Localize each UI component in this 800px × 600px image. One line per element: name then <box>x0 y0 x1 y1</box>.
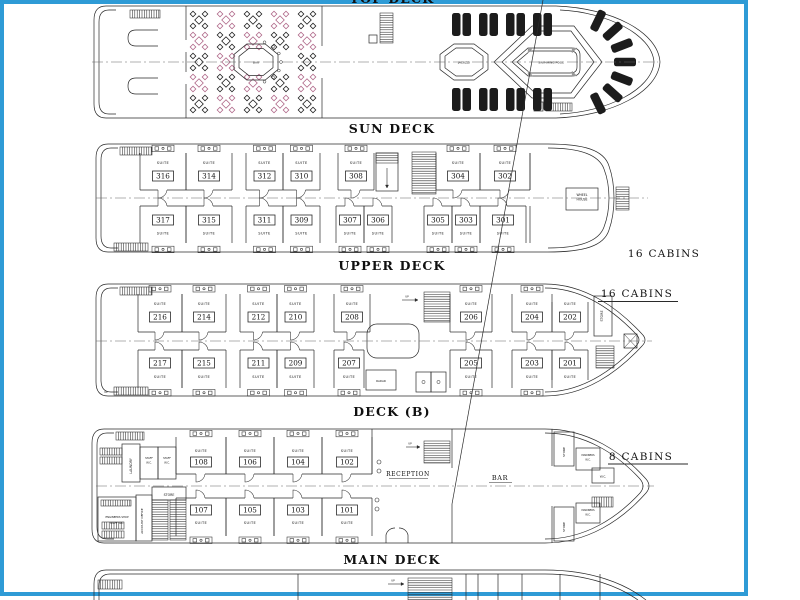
svg-text:SUITE: SUITE <box>244 449 257 453</box>
svg-text:311: 311 <box>258 216 272 225</box>
bar-label: BAR <box>492 474 509 482</box>
svg-text:SUITE: SUITE <box>295 161 308 165</box>
cabin-316: SUITE316 <box>140 145 186 198</box>
svg-text:310: 310 <box>295 172 309 181</box>
svg-text:SUITE: SUITE <box>154 302 167 306</box>
cabin-216: SUITE216 <box>138 286 182 341</box>
laundry-label: LAUNDRY <box>129 457 133 474</box>
svg-text:316: 316 <box>156 172 170 181</box>
svg-text:W.C.: W.C. <box>585 458 591 462</box>
cabin-211: SUITE211 <box>240 342 277 396</box>
svg-text:SUITE: SUITE <box>289 375 302 379</box>
svg-text:SUITE: SUITE <box>343 375 356 379</box>
bar-label: BAR <box>253 61 259 65</box>
radar-label: RADAR <box>376 379 386 383</box>
svg-text:UP: UP <box>104 390 108 394</box>
cabin-310: SUITE310 <box>283 145 320 198</box>
svg-text:SUITE: SUITE <box>195 521 208 525</box>
account-office: ACCOUNT OFFICE <box>136 495 152 541</box>
svg-text:SUITE: SUITE <box>460 232 473 236</box>
svg-text:W.C.: W.C. <box>585 513 591 517</box>
engineers-shop: ENGINEERS SHOPSTAFF W.C. <box>98 497 136 541</box>
svg-text:SUITE: SUITE <box>372 232 385 236</box>
svg-text:105: 105 <box>243 506 257 515</box>
svg-text:SUITE: SUITE <box>341 521 354 525</box>
cabin-214: SUITE214 <box>182 286 226 341</box>
svg-text:SUITE: SUITE <box>258 161 271 165</box>
svg-text:STAFF W.C.: STAFF W.C. <box>110 521 125 525</box>
svg-text:W.C.: W.C. <box>164 461 170 465</box>
svg-text:317: 317 <box>156 216 170 225</box>
radar-room: RADAR <box>366 370 396 390</box>
staff-wc-rooms: STAFFW.C.STAFFW.C. <box>140 447 176 479</box>
svg-text:SUITE: SUITE <box>195 449 208 453</box>
svg-text:314: 314 <box>202 172 216 181</box>
cabin-312: SUITE312 <box>246 145 283 198</box>
cabin-302: SUITE302 <box>480 145 530 198</box>
svg-text:SUITE: SUITE <box>244 521 257 525</box>
store-aft: STORE <box>152 487 186 540</box>
mariners-wc-bottom-label: MARINERS <box>581 508 595 512</box>
cabin-206: SUITE206 <box>450 286 492 341</box>
svg-text:SUITE: SUITE <box>258 232 271 236</box>
svg-text:SUITE: SUITE <box>497 232 510 236</box>
cabin-202: SUITE202 <box>552 302 588 340</box>
wheel-house-label: WHEEL <box>576 193 587 197</box>
svg-text:SUITE: SUITE <box>564 375 577 379</box>
svg-text:SUITE: SUITE <box>465 302 478 306</box>
svg-text:103: 103 <box>291 506 305 515</box>
midship-stairs: UP <box>402 292 450 322</box>
mariners-wc-top-label: MARINERS <box>581 453 595 457</box>
svg-text:SUITE: SUITE <box>203 161 216 165</box>
svg-text:101: 101 <box>340 506 354 515</box>
cabin-208: SUITE208 <box>334 286 370 341</box>
cabin-314: SUITE314 <box>186 145 232 198</box>
reception-label: RECEPTION <box>386 471 430 478</box>
svg-text:304: 304 <box>451 172 465 181</box>
svg-text:216: 216 <box>153 313 167 322</box>
cabin-209: SUITE209 <box>277 342 314 396</box>
svg-text:108: 108 <box>194 458 208 467</box>
sun-deck-plan: BARJACUZZISWIMMING POOL <box>92 6 660 118</box>
upper-deck-caption: UPPER DECK <box>192 258 592 273</box>
cabin-106: SUITE106 <box>226 430 274 482</box>
wc-rooms <box>416 372 446 392</box>
main-deck-cabin-count: 8 CABINS <box>609 451 673 463</box>
svg-text:104: 104 <box>291 458 305 467</box>
svg-text:204: 204 <box>525 313 539 322</box>
svg-text:SUITE: SUITE <box>526 302 539 306</box>
svg-text:308: 308 <box>349 172 363 181</box>
svg-text:SUITE: SUITE <box>344 232 357 236</box>
svg-text:312: 312 <box>258 172 272 181</box>
svg-text:SUITE: SUITE <box>499 161 512 165</box>
cabin-205: SUITE205 <box>450 342 492 396</box>
cabin-104: SUITE104 <box>274 430 322 482</box>
ship-deck-plans: BARJACUZZISWIMMING POOLWHEELHOUSESUITE31… <box>0 0 800 600</box>
cabin-201: SUITE201 <box>552 342 588 380</box>
cabin-207: SUITE207 <box>334 342 364 396</box>
jacuzzi-label: JACUZZI <box>457 61 470 65</box>
svg-text:215: 215 <box>197 359 211 368</box>
reception-area: UPRECEPTION <box>372 429 450 511</box>
deck-b-cabin-count: 16 CABINS <box>601 288 673 300</box>
sun-deck-caption: SUN DECK <box>192 121 592 136</box>
svg-text:203: 203 <box>525 359 539 368</box>
svg-text:307: 307 <box>343 216 357 225</box>
svg-text:STAFF: STAFF <box>163 456 171 460</box>
cabin-101: SUITE101 <box>322 490 372 544</box>
svg-text:SUITE: SUITE <box>292 449 305 453</box>
deck-plan-page: BARJACUZZISWIMMING POOLWHEELHOUSESUITE31… <box>0 0 800 600</box>
upper-deck-cabin-count: 16 CABINS <box>628 248 700 260</box>
svg-text:206: 206 <box>464 313 478 322</box>
cabin-103: SUITE103 <box>274 490 322 544</box>
store-fwd-bottom-label: STORE <box>562 522 566 532</box>
store-fwd-top-label: STORE <box>562 447 566 457</box>
svg-text:212: 212 <box>252 313 266 322</box>
svg-text:SUITE: SUITE <box>154 375 167 379</box>
svg-text:SUITE: SUITE <box>252 375 265 379</box>
deck-b-plan: UPUPSTORERADARSUITE216SUITE214SUITE212SU… <box>96 284 652 396</box>
cabin-102: SUITE102 <box>322 430 372 482</box>
svg-text:SUITE: SUITE <box>252 302 265 306</box>
cabin-217: SUITE217 <box>138 342 182 396</box>
svg-text:W.C.: W.C. <box>146 461 152 465</box>
cabin-307: SUITE307 <box>336 198 364 253</box>
svg-text:SUITE: SUITE <box>295 232 308 236</box>
store-aft-label: STORE <box>164 493 175 497</box>
cabin-311: SUITE311 <box>246 198 283 253</box>
svg-text:SUITE: SUITE <box>452 161 465 165</box>
svg-text:205: 205 <box>464 359 478 368</box>
engineers-shop-label: ENGINEERS SHOP <box>105 515 128 519</box>
cabin-305: SUITE305 <box>424 198 452 253</box>
svg-text:SUITE: SUITE <box>564 302 577 306</box>
svg-text:UP: UP <box>405 295 409 299</box>
svg-text:SUITE: SUITE <box>157 232 170 236</box>
svg-text:SUITE: SUITE <box>203 232 216 236</box>
svg-text:305: 305 <box>431 216 445 225</box>
svg-text:315: 315 <box>202 216 216 225</box>
svg-text:SUITE: SUITE <box>341 449 354 453</box>
svg-text:UP: UP <box>391 579 395 583</box>
cabin-301: SUITE301 <box>480 198 526 253</box>
svg-text:202: 202 <box>563 313 577 322</box>
svg-text:SUITE: SUITE <box>465 375 478 379</box>
midship-stairs <box>376 152 436 194</box>
svg-text:SUITE: SUITE <box>157 161 170 165</box>
svg-text:SUITE: SUITE <box>432 232 445 236</box>
svg-text:208: 208 <box>345 313 359 322</box>
wc-label: W.C. <box>600 475 607 479</box>
cabin-303: SUITE303 <box>452 198 480 253</box>
cabin-215: SUITE215 <box>182 342 226 396</box>
store-room: STORE <box>594 296 612 336</box>
cabin-210: SUITE210 <box>277 286 314 341</box>
svg-text:STAFF: STAFF <box>145 456 153 460</box>
svg-text:SUITE: SUITE <box>198 302 211 306</box>
svg-text:106: 106 <box>243 458 257 467</box>
svg-text:211: 211 <box>252 359 266 368</box>
cabin-317: SUITE317 <box>140 198 186 253</box>
cabin-204: SUITE204 <box>512 286 552 341</box>
bow-rooms: STOREMARINERSW.C.W.C.STOREMARINERSW.C. <box>554 432 614 541</box>
svg-text:209: 209 <box>289 359 303 368</box>
svg-text:302: 302 <box>498 172 512 181</box>
svg-text:102: 102 <box>340 458 354 467</box>
svg-text:303: 303 <box>459 216 473 225</box>
main-deck-caption: MAIN DECK <box>192 552 592 567</box>
laundry-room: LAUNDRY <box>122 444 140 482</box>
wheel-house: WHEELHOUSE <box>566 188 598 210</box>
svg-text:214: 214 <box>197 313 211 322</box>
svg-text:306: 306 <box>371 216 385 225</box>
store-label: STORE <box>600 310 604 321</box>
svg-text:SUITE: SUITE <box>292 521 305 525</box>
cabin-308: SUITE308 <box>338 145 374 198</box>
swimming-pool-label: SWIMMING POOL <box>538 61 564 65</box>
cabin-105: SUITE105 <box>226 490 274 544</box>
clipped-top-caption: TOP DECK <box>192 0 592 6</box>
svg-text:SUITE: SUITE <box>289 302 302 306</box>
svg-text:SUITE: SUITE <box>198 375 211 379</box>
cabin-309: SUITE309 <box>283 198 320 253</box>
svg-text:SUITE: SUITE <box>526 375 539 379</box>
cabin-304: SUITE304 <box>436 145 480 198</box>
svg-text:SUITE: SUITE <box>346 302 359 306</box>
cabin-212: SUITE212 <box>240 286 277 341</box>
svg-text:SUITE: SUITE <box>350 161 363 165</box>
account-office-label: ACCOUNT OFFICE <box>140 508 144 534</box>
svg-text:201: 201 <box>563 359 577 368</box>
upper-deck-plan: WHEELHOUSESUITE316SUITE314SUITE312SUITE3… <box>96 144 648 253</box>
cabin-203: SUITE203 <box>512 342 552 396</box>
svg-text:107: 107 <box>194 506 208 515</box>
deck-b-caption: DECK (B) <box>192 404 592 419</box>
svg-text:309: 309 <box>295 216 309 225</box>
svg-text:217: 217 <box>153 359 167 368</box>
svg-text:UP: UP <box>408 442 412 446</box>
cabin-108: SUITE108 <box>176 430 226 482</box>
cabin-315: SUITE315 <box>186 198 232 253</box>
atrium <box>367 324 419 358</box>
svg-text:210: 210 <box>289 313 303 322</box>
svg-text:207: 207 <box>342 359 356 368</box>
cabin-306: SUITE306 <box>364 198 392 253</box>
